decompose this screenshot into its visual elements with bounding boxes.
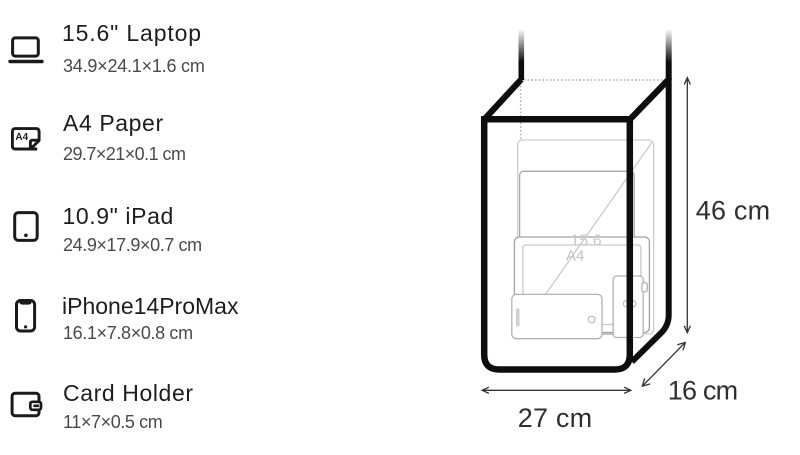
svg-text:46 cm: 46 cm — [696, 195, 771, 225]
svg-text:A4: A4 — [15, 132, 28, 143]
svg-text:27 cm: 27 cm — [518, 403, 593, 433]
svg-text:16 cm: 16 cm — [668, 375, 738, 405]
